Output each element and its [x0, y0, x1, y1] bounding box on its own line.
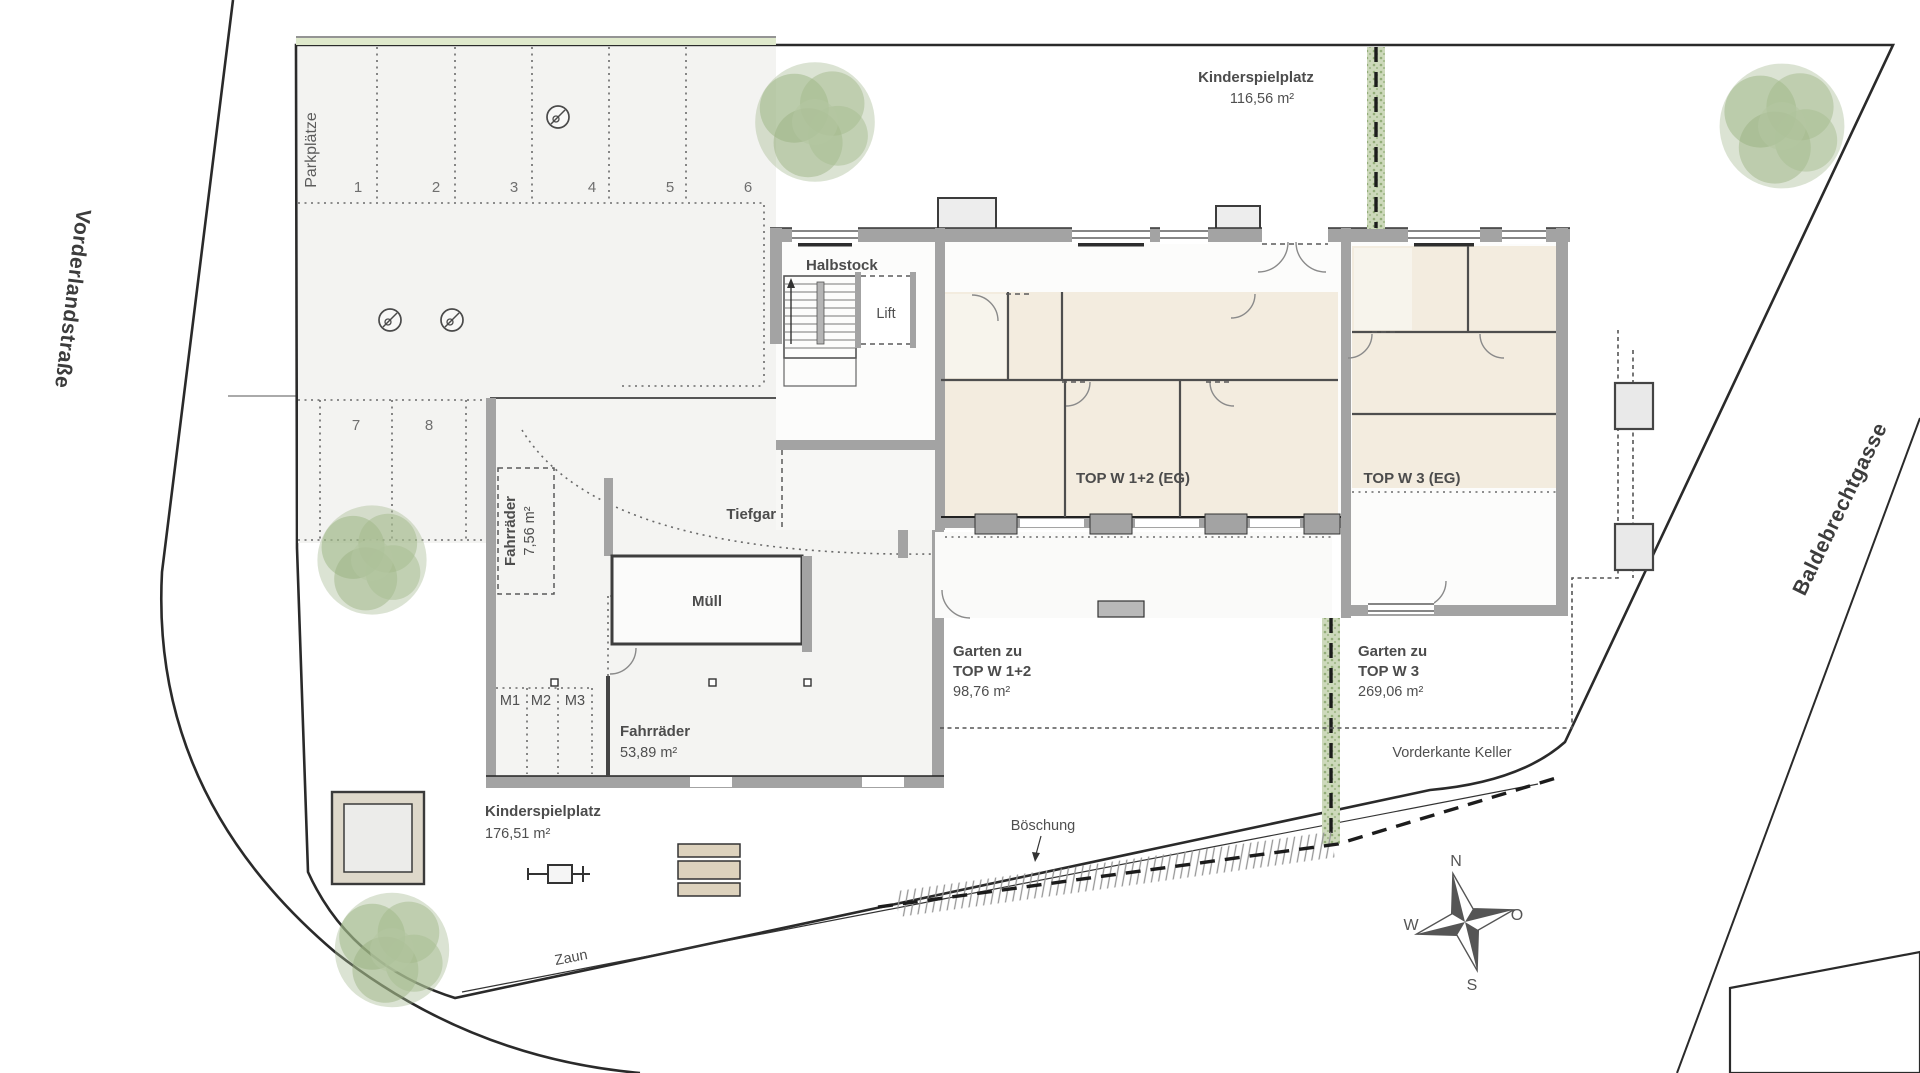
- tree: [317, 505, 426, 614]
- garden-area: 269,06 m²: [1358, 684, 1423, 700]
- window: [1072, 226, 1150, 247]
- halffloor-label: Halbstock: [806, 257, 878, 274]
- play-name: Kinderspielplatz: [485, 803, 601, 820]
- playground: Kinderspielplatz 176,51 m²: [332, 792, 740, 896]
- stall-number: 2: [432, 179, 440, 196]
- tree: [755, 62, 875, 182]
- stall-number: 6: [744, 179, 752, 196]
- moto-stall: M3: [565, 693, 585, 709]
- garden3-label: Garten zu TOP W 3 269,06 m²: [1358, 643, 1427, 700]
- garden-line1: Garten zu: [953, 643, 1022, 660]
- room-name: Fahrräder: [502, 496, 519, 566]
- window: [792, 226, 858, 247]
- street-right-label: Baldebrechtgasse: [1788, 419, 1891, 599]
- street-right: Baldebrechtgasse: [1677, 418, 1920, 1073]
- compass-rose: N O S W: [1403, 853, 1525, 994]
- garden-line2: TOP W 3: [1358, 663, 1419, 680]
- compass-e: O: [1511, 907, 1523, 924]
- unit3-label: TOP W 3 (EG): [1364, 470, 1461, 487]
- stall-number: 7: [352, 417, 360, 434]
- post: [1615, 383, 1653, 429]
- window: [1408, 226, 1480, 247]
- manhole-icon: [379, 309, 401, 331]
- room-area: 7,56 m²: [522, 506, 538, 555]
- compass-n: N: [1450, 853, 1462, 870]
- garden12-label: Garten zu TOP W 1+2 98,76 m²: [953, 643, 1031, 700]
- street-left-label: Vorderlandstraße: [50, 208, 95, 390]
- chimney: [938, 198, 996, 232]
- play-area: 116,56 m²: [1230, 91, 1294, 107]
- window: [1160, 226, 1208, 244]
- garage-west-wall: [486, 398, 496, 788]
- lift-shaft: Lift: [855, 272, 916, 348]
- basement-label: Vorderkante Keller: [1392, 745, 1511, 761]
- garden-area: 98,76 m²: [953, 684, 1010, 700]
- tree: [1720, 64, 1845, 189]
- lift-label: Lift: [876, 306, 895, 322]
- tree: [335, 893, 449, 1007]
- manhole-icon: [441, 309, 463, 331]
- street-name: Baldebrechtgasse: [1788, 419, 1891, 599]
- benches: [678, 844, 740, 896]
- compass-w: W: [1403, 917, 1419, 934]
- compass-s: S: [1467, 977, 1478, 994]
- garden-line1: Garten zu: [1358, 643, 1427, 660]
- stall-number: 1: [354, 179, 362, 196]
- stall-number: 4: [588, 179, 596, 196]
- play-name: Kinderspielplatz: [1198, 69, 1314, 86]
- play-top-label: Kinderspielplatz 116,56 m²: [1198, 69, 1314, 107]
- room-area: 53,89 m²: [620, 745, 677, 761]
- parking-label: Parkplätze: [303, 112, 320, 188]
- waste-label: Müll: [692, 593, 722, 610]
- stall-number: 5: [666, 179, 674, 196]
- neighbor-building: [1730, 952, 1920, 1073]
- fence-label: Zaun: [553, 947, 589, 969]
- site-plan-svg: Vorderlandstraße Baldebrechtgasse Zaun P…: [0, 0, 1920, 1073]
- window: [1502, 226, 1546, 244]
- post: [1615, 524, 1653, 570]
- unit12-label: TOP W 1+2 (EG): [1076, 470, 1190, 487]
- street-name: Vorderlandstraße: [50, 208, 95, 390]
- garden-line2: TOP W 1+2: [953, 663, 1031, 680]
- spring-toy-icon: [528, 865, 590, 883]
- room-name: Fahrräder: [620, 723, 690, 740]
- moto-stall: M2: [531, 693, 551, 709]
- manhole-icon: [547, 106, 569, 128]
- garden-step: [1098, 601, 1144, 617]
- stall-number: 3: [510, 179, 518, 196]
- slope-label: Böschung: [1011, 818, 1076, 834]
- stall-number: 8: [425, 417, 433, 434]
- site-plan: Vorderlandstraße Baldebrechtgasse Zaun P…: [0, 0, 1920, 1073]
- play-bottom-label: Kinderspielplatz 176,51 m²: [485, 803, 601, 842]
- play-area: 176,51 m²: [485, 826, 550, 842]
- moto-stall: M1: [500, 693, 520, 709]
